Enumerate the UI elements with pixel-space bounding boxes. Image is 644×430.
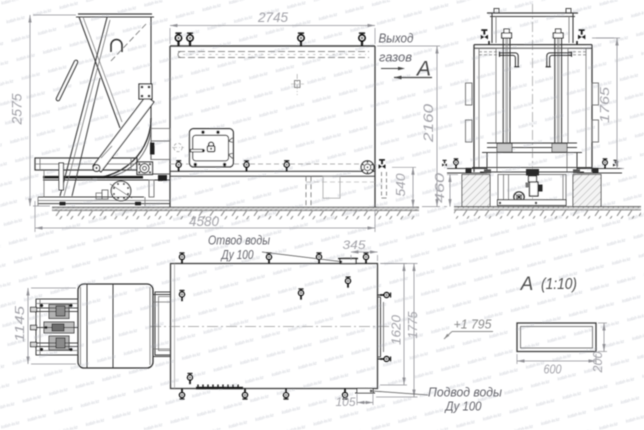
svg-text:540: 540 xyxy=(394,173,408,196)
svg-text:1765: 1765 xyxy=(598,87,612,123)
svg-text:600: 600 xyxy=(544,363,562,377)
svg-text:А: А xyxy=(520,274,534,295)
svg-text:+1 795: +1 795 xyxy=(454,318,492,332)
svg-text:(1:10): (1:10) xyxy=(541,276,577,293)
svg-text:Ду 100: Ду 100 xyxy=(220,247,254,262)
svg-text:Ду 100: Ду 100 xyxy=(444,399,482,414)
svg-text:2745: 2745 xyxy=(257,10,288,25)
svg-text:460: 460 xyxy=(433,173,447,203)
svg-text:Отвод воды: Отвод воды xyxy=(208,233,270,248)
svg-text:345: 345 xyxy=(343,238,366,252)
svg-text:1620: 1620 xyxy=(390,315,404,345)
svg-text:2575: 2575 xyxy=(10,93,25,126)
svg-text:1145: 1145 xyxy=(13,306,27,342)
svg-text:2160: 2160 xyxy=(421,103,436,143)
svg-text:105: 105 xyxy=(336,395,356,409)
svg-text:1775: 1775 xyxy=(406,311,420,338)
svg-text:Выход: Выход xyxy=(379,31,414,46)
svg-text:Подвод воды: Подвод воды xyxy=(428,385,502,400)
svg-text:газов: газов xyxy=(379,50,412,65)
svg-text:4580: 4580 xyxy=(189,214,219,229)
svg-text:200: 200 xyxy=(591,351,605,373)
